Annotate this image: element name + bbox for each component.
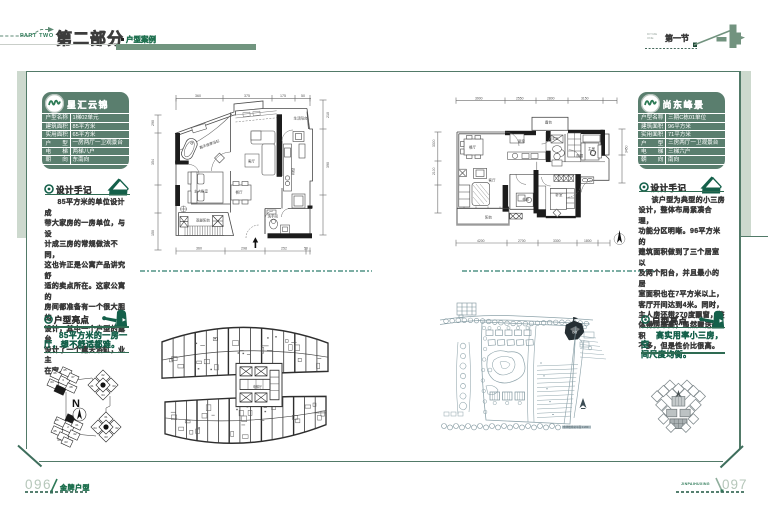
svg-text:阳台: 阳台 [485,215,493,220]
svg-text:150: 150 [151,230,155,236]
svg-text:07: 07 [71,375,75,379]
svg-text:354: 354 [151,159,155,165]
svg-text:餐厅: 餐厅 [236,189,243,194]
svg-text:175: 175 [280,94,286,98]
svg-text:4200: 4200 [477,239,485,243]
svg-text:3300: 3300 [432,139,436,147]
svg-text:主人卧室: 主人卧室 [194,189,208,194]
svg-text:01: 01 [104,415,108,419]
svg-text:生活阳台: 生活阳台 [294,116,308,121]
svg-text:衣帽: 衣帽 [576,153,584,158]
svg-text:390: 390 [326,162,330,168]
svg-text:50: 50 [301,94,305,98]
svg-text:2800: 2800 [547,96,555,100]
svg-text:05: 05 [53,429,57,433]
svg-text:金牌楼座总平面 1:200: 金牌楼座总平面 1:200 [563,425,589,429]
svg-text:主卫: 主卫 [552,136,558,141]
svg-text:02: 02 [73,432,77,436]
svg-text:1800: 1800 [584,239,592,243]
svg-text:04: 04 [93,426,97,430]
svg-text:03: 03 [64,440,68,444]
svg-text:露台: 露台 [545,120,553,125]
svg-text:书房: 书房 [522,197,530,202]
svg-text:客厅: 客厅 [489,178,497,183]
svg-text:360: 360 [195,94,201,98]
svg-text:02: 02 [115,426,119,430]
svg-text:露天按摩浴缸: 露天按摩浴缸 [199,138,221,150]
svg-text:洗手间: 洗手间 [268,214,279,219]
svg-text:252: 252 [281,247,287,251]
svg-text:餐厅: 餐厅 [469,145,477,150]
svg-text:05: 05 [63,368,67,372]
svg-text:03: 03 [112,384,116,388]
svg-text:3150: 3150 [581,96,589,100]
svg-text:01: 01 [75,423,79,427]
svg-text:3450: 3450 [625,145,629,153]
svg-text:03: 03 [104,435,108,439]
svg-text:375: 375 [244,94,250,98]
svg-text:02: 02 [101,373,105,377]
svg-text:290: 290 [151,120,155,126]
svg-text:2700: 2700 [518,239,526,243]
svg-text:50: 50 [304,247,308,251]
svg-text:04: 04 [50,380,54,384]
svg-text:298: 298 [241,247,247,251]
svg-text:厨房: 厨房 [518,139,526,144]
svg-text:04: 04 [57,438,61,442]
svg-text:06: 06 [55,418,59,422]
svg-text:01: 01 [90,384,94,388]
svg-text:主房: 主房 [588,146,596,151]
svg-text:GB: GB [572,331,578,335]
svg-text:3300: 3300 [553,239,561,243]
svg-text:08: 08 [69,385,73,389]
svg-text:04: 04 [101,393,105,397]
svg-text:观景阳台: 观景阳台 [196,217,210,222]
svg-text:2100: 2100 [432,167,436,175]
svg-text:电梯厅: 电梯厅 [253,384,263,389]
svg-text:360: 360 [196,247,202,251]
svg-text:2550: 2550 [516,96,524,100]
svg-text:3900: 3900 [475,96,483,100]
svg-text:卧室: 卧室 [556,192,564,197]
svg-text:厨房: 厨房 [290,167,295,176]
svg-text:210: 210 [326,112,330,118]
svg-text:客厅: 客厅 [248,159,255,164]
svg-text:06: 06 [53,371,57,375]
